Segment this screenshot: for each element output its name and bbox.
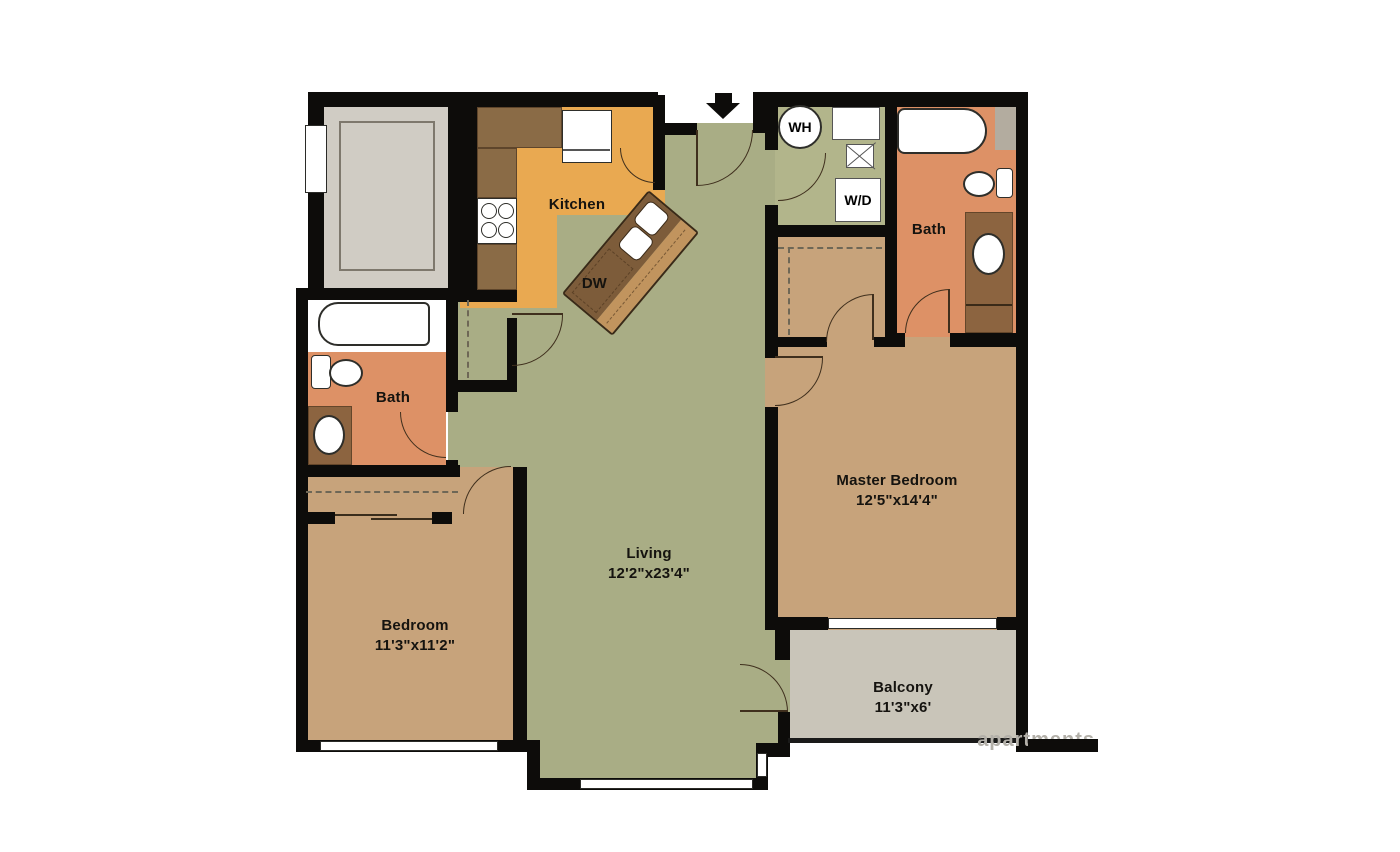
bedroom-window xyxy=(320,741,498,751)
bedroom-label-dims: 11'3"x11'2" xyxy=(375,636,455,656)
wall-bedroom-right xyxy=(513,467,527,752)
master-bedroom-label-text: Master Bedroom xyxy=(836,471,957,491)
living-window xyxy=(580,779,753,789)
utility-box xyxy=(846,144,874,168)
wall-bedroom-closet-a xyxy=(296,512,335,524)
toilet-left-bowl xyxy=(329,359,363,387)
sink-left xyxy=(313,415,345,455)
linen-chase xyxy=(995,107,1016,150)
living-label-dims: 12'2"x23'4" xyxy=(608,564,690,584)
wall-closet-bottom-b xyxy=(874,337,885,347)
vanity-right-divider xyxy=(966,304,1012,306)
closet-slider-door-a xyxy=(335,514,397,516)
walkin-closet-dash-v xyxy=(788,247,790,335)
bedroom-label: Bedroom 11'3"x11'2" xyxy=(375,616,455,656)
bath-right-label: Bath xyxy=(912,220,946,240)
master-window xyxy=(828,618,997,629)
master-bedroom-label-dims: 12'5"x14'4" xyxy=(836,491,957,511)
balcony-label-dims: 11'3"x6' xyxy=(873,698,933,718)
bath-right-door-leaf xyxy=(948,289,950,333)
washer-dryer-label: W/D xyxy=(844,192,871,208)
kitchen-counter-left-a xyxy=(477,148,517,198)
wall-entry-jamb-right xyxy=(753,92,765,133)
balcony-label-text: Balcony xyxy=(873,678,933,698)
bedroom-closet-dash xyxy=(306,491,458,493)
wall-laundry-bath xyxy=(885,92,897,347)
wall-utility-kitchen xyxy=(448,92,478,302)
wall-left-upper xyxy=(308,92,324,300)
living-bay-floor xyxy=(538,743,768,780)
wall-master-bottom-a xyxy=(775,617,828,630)
bathtub-left xyxy=(318,302,430,346)
burner-4 xyxy=(498,222,514,238)
toilet-right-bowl xyxy=(963,171,995,197)
utility-box-diag-1 xyxy=(846,145,875,170)
refrigerator xyxy=(562,110,612,163)
wall-suite-a xyxy=(765,107,778,150)
water-heater-label: WH xyxy=(788,119,811,135)
burner-2 xyxy=(498,203,514,219)
balcony-door-leaf xyxy=(740,710,788,712)
laundry-shelf xyxy=(832,107,880,140)
living-label-text: Living xyxy=(608,544,690,564)
balcony-label: Balcony 11'3"x6' xyxy=(873,678,933,718)
wall-top-left xyxy=(308,92,658,107)
wall-right xyxy=(1016,92,1028,752)
wall-bath-left-top xyxy=(296,288,460,300)
watermark-bar-over xyxy=(1028,739,1098,752)
toilet-right-tank xyxy=(996,168,1013,198)
walkin-closet-dash-h xyxy=(778,247,882,249)
hall-closet-door-leaf xyxy=(512,313,563,315)
kitchen-counter-top xyxy=(477,107,562,148)
living-label: Living 12'2"x23'4" xyxy=(608,544,690,584)
burner-3 xyxy=(481,222,497,238)
wall-suite-c xyxy=(765,407,778,630)
dishwasher-label: DW xyxy=(582,275,607,292)
wall-balcony-step xyxy=(775,630,790,660)
bathtub-right xyxy=(897,108,987,154)
bath-left-label-text: Bath xyxy=(376,388,410,408)
wall-closet-bottom-a xyxy=(765,337,827,347)
hall-closet-dash xyxy=(467,300,469,378)
bath-left-label: Bath xyxy=(376,388,410,408)
burner-1 xyxy=(481,203,497,219)
wall-bath-right-bottom-a xyxy=(885,333,905,347)
closet-slider-door-b xyxy=(371,518,432,520)
entry-arrow-icon xyxy=(706,103,740,119)
stove xyxy=(477,198,517,244)
wall-hall-closet-bottom xyxy=(448,380,517,392)
master-bedroom-label: Master Bedroom 12'5"x14'4" xyxy=(836,471,957,511)
kitchen-label: Kitchen xyxy=(549,195,605,215)
living-side-window xyxy=(757,753,767,777)
utility-room-inner-outline xyxy=(339,121,435,271)
utility-box-diag-2 xyxy=(847,142,876,167)
wall-bath-right-bottom-b xyxy=(950,333,1016,347)
kitchen-counter-left-b xyxy=(477,244,517,290)
wall-entry-threshold xyxy=(663,123,697,135)
wall-laundry-bottom xyxy=(775,225,885,237)
wall-master-bottom-b xyxy=(997,617,1016,630)
walkin-closet-door-leaf xyxy=(872,294,874,340)
wall-bath-left-bottom xyxy=(296,465,460,477)
entry-door-leaf xyxy=(696,130,698,186)
washer-dryer: W/D xyxy=(835,178,881,222)
water-heater: WH xyxy=(778,105,822,149)
sink-right xyxy=(972,233,1005,275)
bedroom-label-text: Bedroom xyxy=(375,616,455,636)
toilet-left-tank xyxy=(311,355,331,389)
wall-kitchen-bottom xyxy=(448,290,517,302)
wall-living-low xyxy=(778,712,790,752)
floor-plan: DW WH W/D Kitchen Living 12'2"x23'4" Bed… xyxy=(0,0,1400,852)
kitchen-label-text: Kitchen xyxy=(549,195,605,215)
wall-bedroom-closet-b xyxy=(432,512,452,524)
refrigerator-handle-line xyxy=(563,149,610,151)
wall-hall-left-a xyxy=(446,288,458,412)
utility-window xyxy=(305,125,327,193)
bath-right-label-text: Bath xyxy=(912,220,946,240)
master-door-leaf xyxy=(775,356,823,358)
